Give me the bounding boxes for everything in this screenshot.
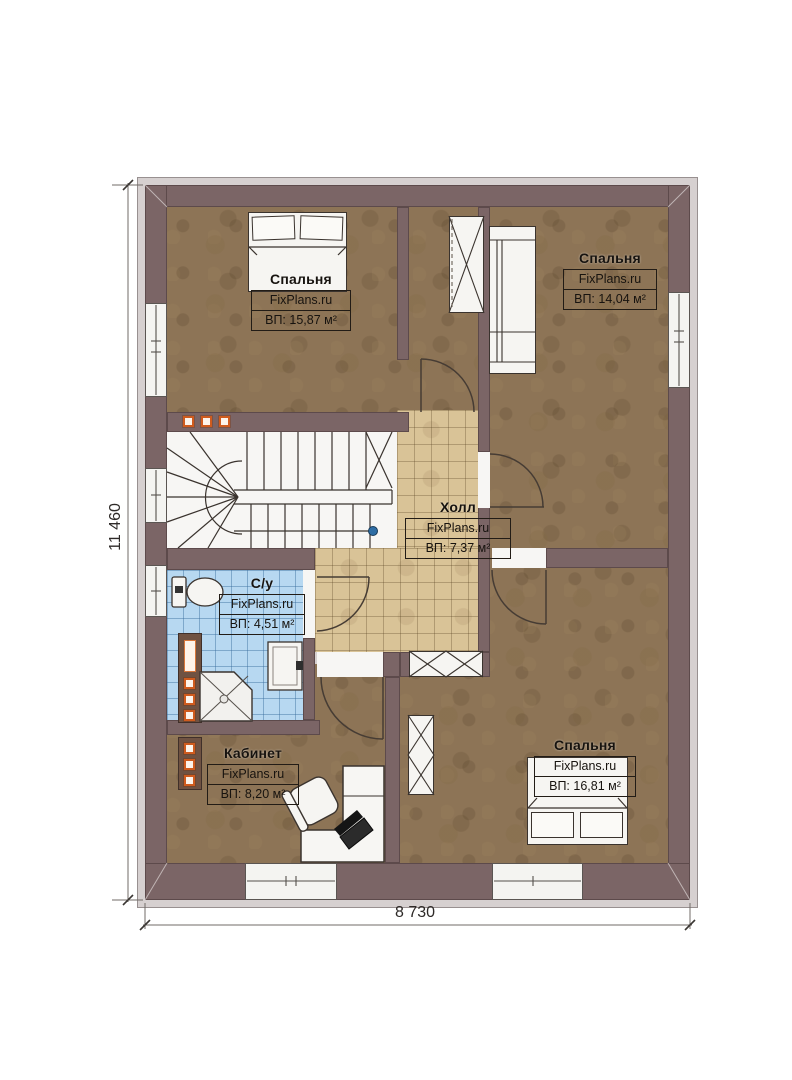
wardrobe-closet-x [449,216,484,313]
window-left-3 [145,565,167,617]
room-watermark: FixPlans.ru [564,270,656,289]
room-watermark: FixPlans.ru [220,595,304,614]
pillow [580,812,623,838]
radiator-cell [184,743,195,754]
dimension-height-label: 11 460 [107,503,125,551]
floor-plan-scene: Спальня FixPlans.ru ВП: 15,87 м² Спальня… [0,0,792,1080]
window-bottom-2 [492,863,583,900]
wall-office-bedroombr [385,677,400,863]
room-label-office: Кабинет FixPlans.ru ВП: 8,20 м² [207,745,299,805]
room-name: Спальня [563,250,657,266]
room-watermark: FixPlans.ru [406,519,510,538]
radiator-cell [184,710,195,721]
wall-bedroomtl-closet [397,207,409,360]
room-watermark: FixPlans.ru [208,765,298,784]
window-bottom-1 [245,863,337,900]
wall-outer-top [145,185,690,207]
room-watermark: FixPlans.ru [252,291,350,310]
room-label-bedroom-top-left: Спальня FixPlans.ru ВП: 15,87 м² [251,271,351,331]
room-label-bedroom-bottom-right: Спальня FixPlans.ru ВП: 16,81 м² [534,737,636,797]
wardrobe-bedroom-top-right [489,226,536,374]
room-area: ВП: 8,20 м² [208,784,298,804]
room-label-bedroom-top-right: Спальня FixPlans.ru ВП: 14,04 м² [563,250,657,310]
room-label-hall: Холл FixPlans.ru ВП: 7,37 м² [405,499,511,559]
room-name: Кабинет [207,745,299,761]
room-area: ВП: 4,51 м² [220,614,304,634]
wall-bathroom-right [303,638,315,720]
room-name: Спальня [534,737,636,753]
wall-light-icon [201,416,212,427]
radiator-cell [184,775,195,786]
radiator-cell [184,759,195,770]
wall-outer-bottom [145,863,690,900]
window-left-1 [145,303,167,397]
radiator-cell [184,694,195,705]
dimension-width-label: 8 730 [395,904,435,922]
wardrobe-bedroom-bottom-right [408,715,434,795]
pillow [300,215,344,240]
wall-between-right-bedrooms [546,548,668,568]
room-name: Холл [405,499,511,515]
window-right-1 [668,292,690,388]
radiator-slot [184,640,196,672]
wall-outer-left [145,185,167,900]
wall-office-door-jamb [383,652,400,677]
window-left-2 [145,468,167,523]
room-name: С/у [219,575,305,591]
room-area: ВП: 14,04 м² [564,289,656,309]
towel-radiator [178,633,202,723]
wall-bathroom-top [167,548,315,570]
office-radiator [178,737,202,790]
staircase-floor [167,412,397,548]
room-name: Спальня [251,271,351,287]
pillow [531,812,574,838]
room-area: ВП: 7,37 м² [406,538,510,558]
room-area: ВП: 16,81 м² [535,776,635,796]
room-label-bathroom: С/у FixPlans.ru ВП: 4,51 м² [219,575,305,635]
radiator-cell [184,678,195,689]
pillow [252,215,296,240]
wall-light-icon [183,416,194,427]
room-watermark: FixPlans.ru [535,757,635,776]
wardrobe-niche-x [409,651,483,677]
floor-hall-corridor [315,548,478,652]
room-area: ВП: 15,87 м² [252,310,350,330]
door-opening-office [317,652,383,677]
wall-light-icon [219,416,230,427]
